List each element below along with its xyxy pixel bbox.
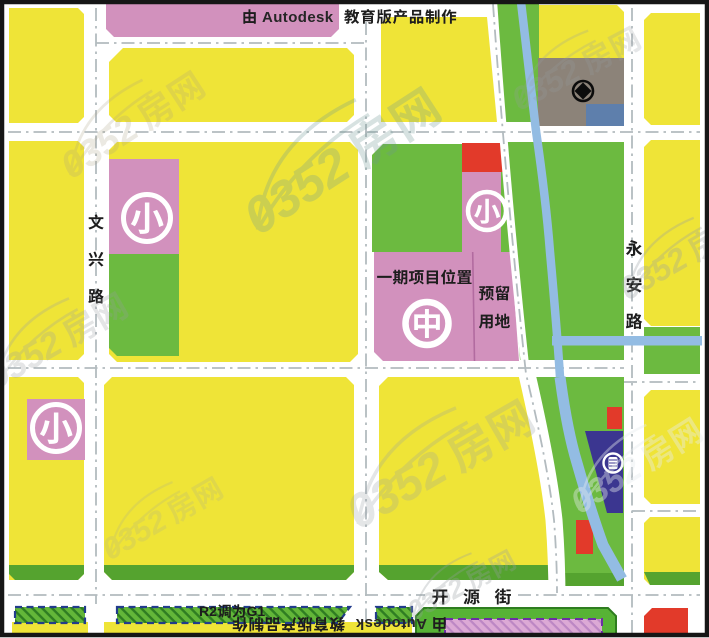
svg-text:Autodesk: Autodesk [262,9,334,26]
svg-text:G1: G1 [247,603,266,619]
svg-text:R2: R2 [199,603,217,619]
